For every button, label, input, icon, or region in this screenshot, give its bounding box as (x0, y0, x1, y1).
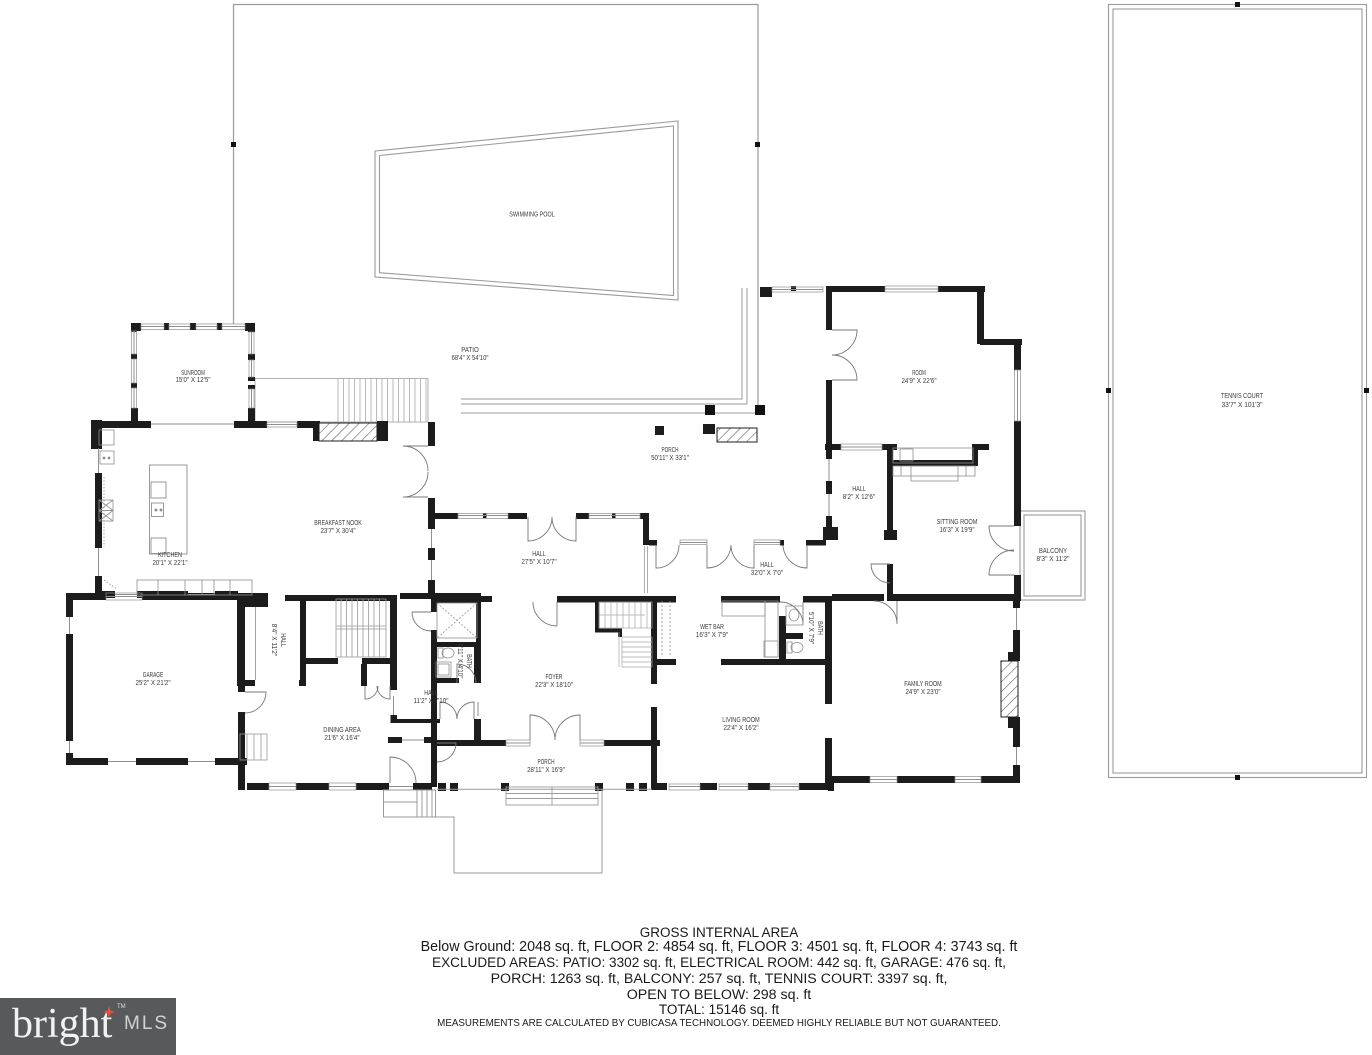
svg-text:22'3" X 18'10": 22'3" X 18'10" (535, 682, 573, 689)
svg-text:TENNIS COURT: TENNIS COURT (1221, 393, 1264, 400)
svg-text:KITCHEN: KITCHEN (158, 552, 182, 559)
svg-text:BALCONY: BALCONY (1039, 548, 1067, 555)
svg-text:BREAKFAST NOOK: BREAKFAST NOOK (314, 520, 362, 527)
svg-text:SWIMMING POOL: SWIMMING POOL (509, 212, 555, 219)
svg-text:50'11" X 33'1": 50'11" X 33'1" (651, 455, 689, 462)
svg-text:ROOM: ROOM (912, 370, 926, 377)
svg-text:33'7" X 101'3": 33'7" X 101'3" (1222, 402, 1263, 409)
svg-text:HALL: HALL (532, 551, 546, 558)
svg-text:FAMILY ROOM: FAMILY ROOM (904, 681, 942, 688)
svg-text:FOYER: FOYER (546, 674, 563, 681)
svg-text:28'11" X 16'9": 28'11" X 16'9" (527, 767, 565, 774)
svg-text:HALL: HALL (424, 690, 438, 697)
svg-text:SITTING ROOM: SITTING ROOM (937, 519, 978, 526)
svg-text:11'2" X 7'10": 11'2" X 7'10" (413, 698, 449, 705)
svg-text:25'2" X 21'2": 25'2" X 21'2" (135, 680, 171, 687)
svg-text:15'0" X 12'5": 15'0" X 12'5" (175, 377, 211, 384)
svg-text:WET BAR: WET BAR (700, 624, 724, 631)
svg-text:PORCH: PORCH (662, 447, 679, 454)
svg-text:GARAGE: GARAGE (143, 672, 164, 679)
svg-text:5'10" X 7'9": 5'10" X 7'9" (807, 612, 814, 645)
svg-text:HALL: HALL (760, 562, 774, 569)
svg-text:16'3" X 19'9": 16'3" X 19'9" (939, 527, 975, 534)
svg-text:16'3" X 7'9": 16'3" X 7'9" (696, 632, 729, 639)
svg-text:PORCH: PORCH (538, 759, 555, 766)
svg-text:BATH: BATH (465, 654, 472, 668)
svg-text:22'4" X 16'2": 22'4" X 16'2" (723, 725, 759, 732)
svg-text:21'6" X 16'4": 21'6" X 16'4" (324, 735, 360, 742)
svg-text:PATIO: PATIO (461, 347, 479, 354)
svg-text:27'5" X 10'7": 27'5" X 10'7" (521, 559, 557, 566)
svg-text:23'7" X 30'4": 23'7" X 30'4" (320, 528, 356, 535)
svg-text:8'3" X 11'2": 8'3" X 11'2" (1037, 556, 1070, 563)
svg-text:5'11" X 4'10": 5'11" X 4'10" (456, 643, 463, 679)
svg-text:32'0" X 7'0": 32'0" X 7'0" (751, 570, 784, 577)
svg-text:LIVING ROOM: LIVING ROOM (722, 717, 760, 724)
svg-text:8'4" X 11'2": 8'4" X 11'2" (270, 624, 277, 657)
svg-text:DINING AREA: DINING AREA (323, 727, 361, 734)
svg-text:HALL: HALL (852, 486, 866, 493)
svg-text:24'9" X 23'0": 24'9" X 23'0" (905, 689, 941, 696)
svg-text:68'4" X 54'10": 68'4" X 54'10" (452, 355, 489, 362)
svg-text:HALL: HALL (279, 633, 286, 647)
svg-text:BATH: BATH (816, 621, 823, 635)
svg-text:8'2" X 12'6": 8'2" X 12'6" (843, 494, 876, 501)
svg-text:SUNROOM: SUNROOM (181, 370, 205, 377)
svg-text:24'9" X 22'6": 24'9" X 22'6" (901, 378, 937, 385)
svg-text:20'1" X 22'1": 20'1" X 22'1" (152, 560, 188, 567)
